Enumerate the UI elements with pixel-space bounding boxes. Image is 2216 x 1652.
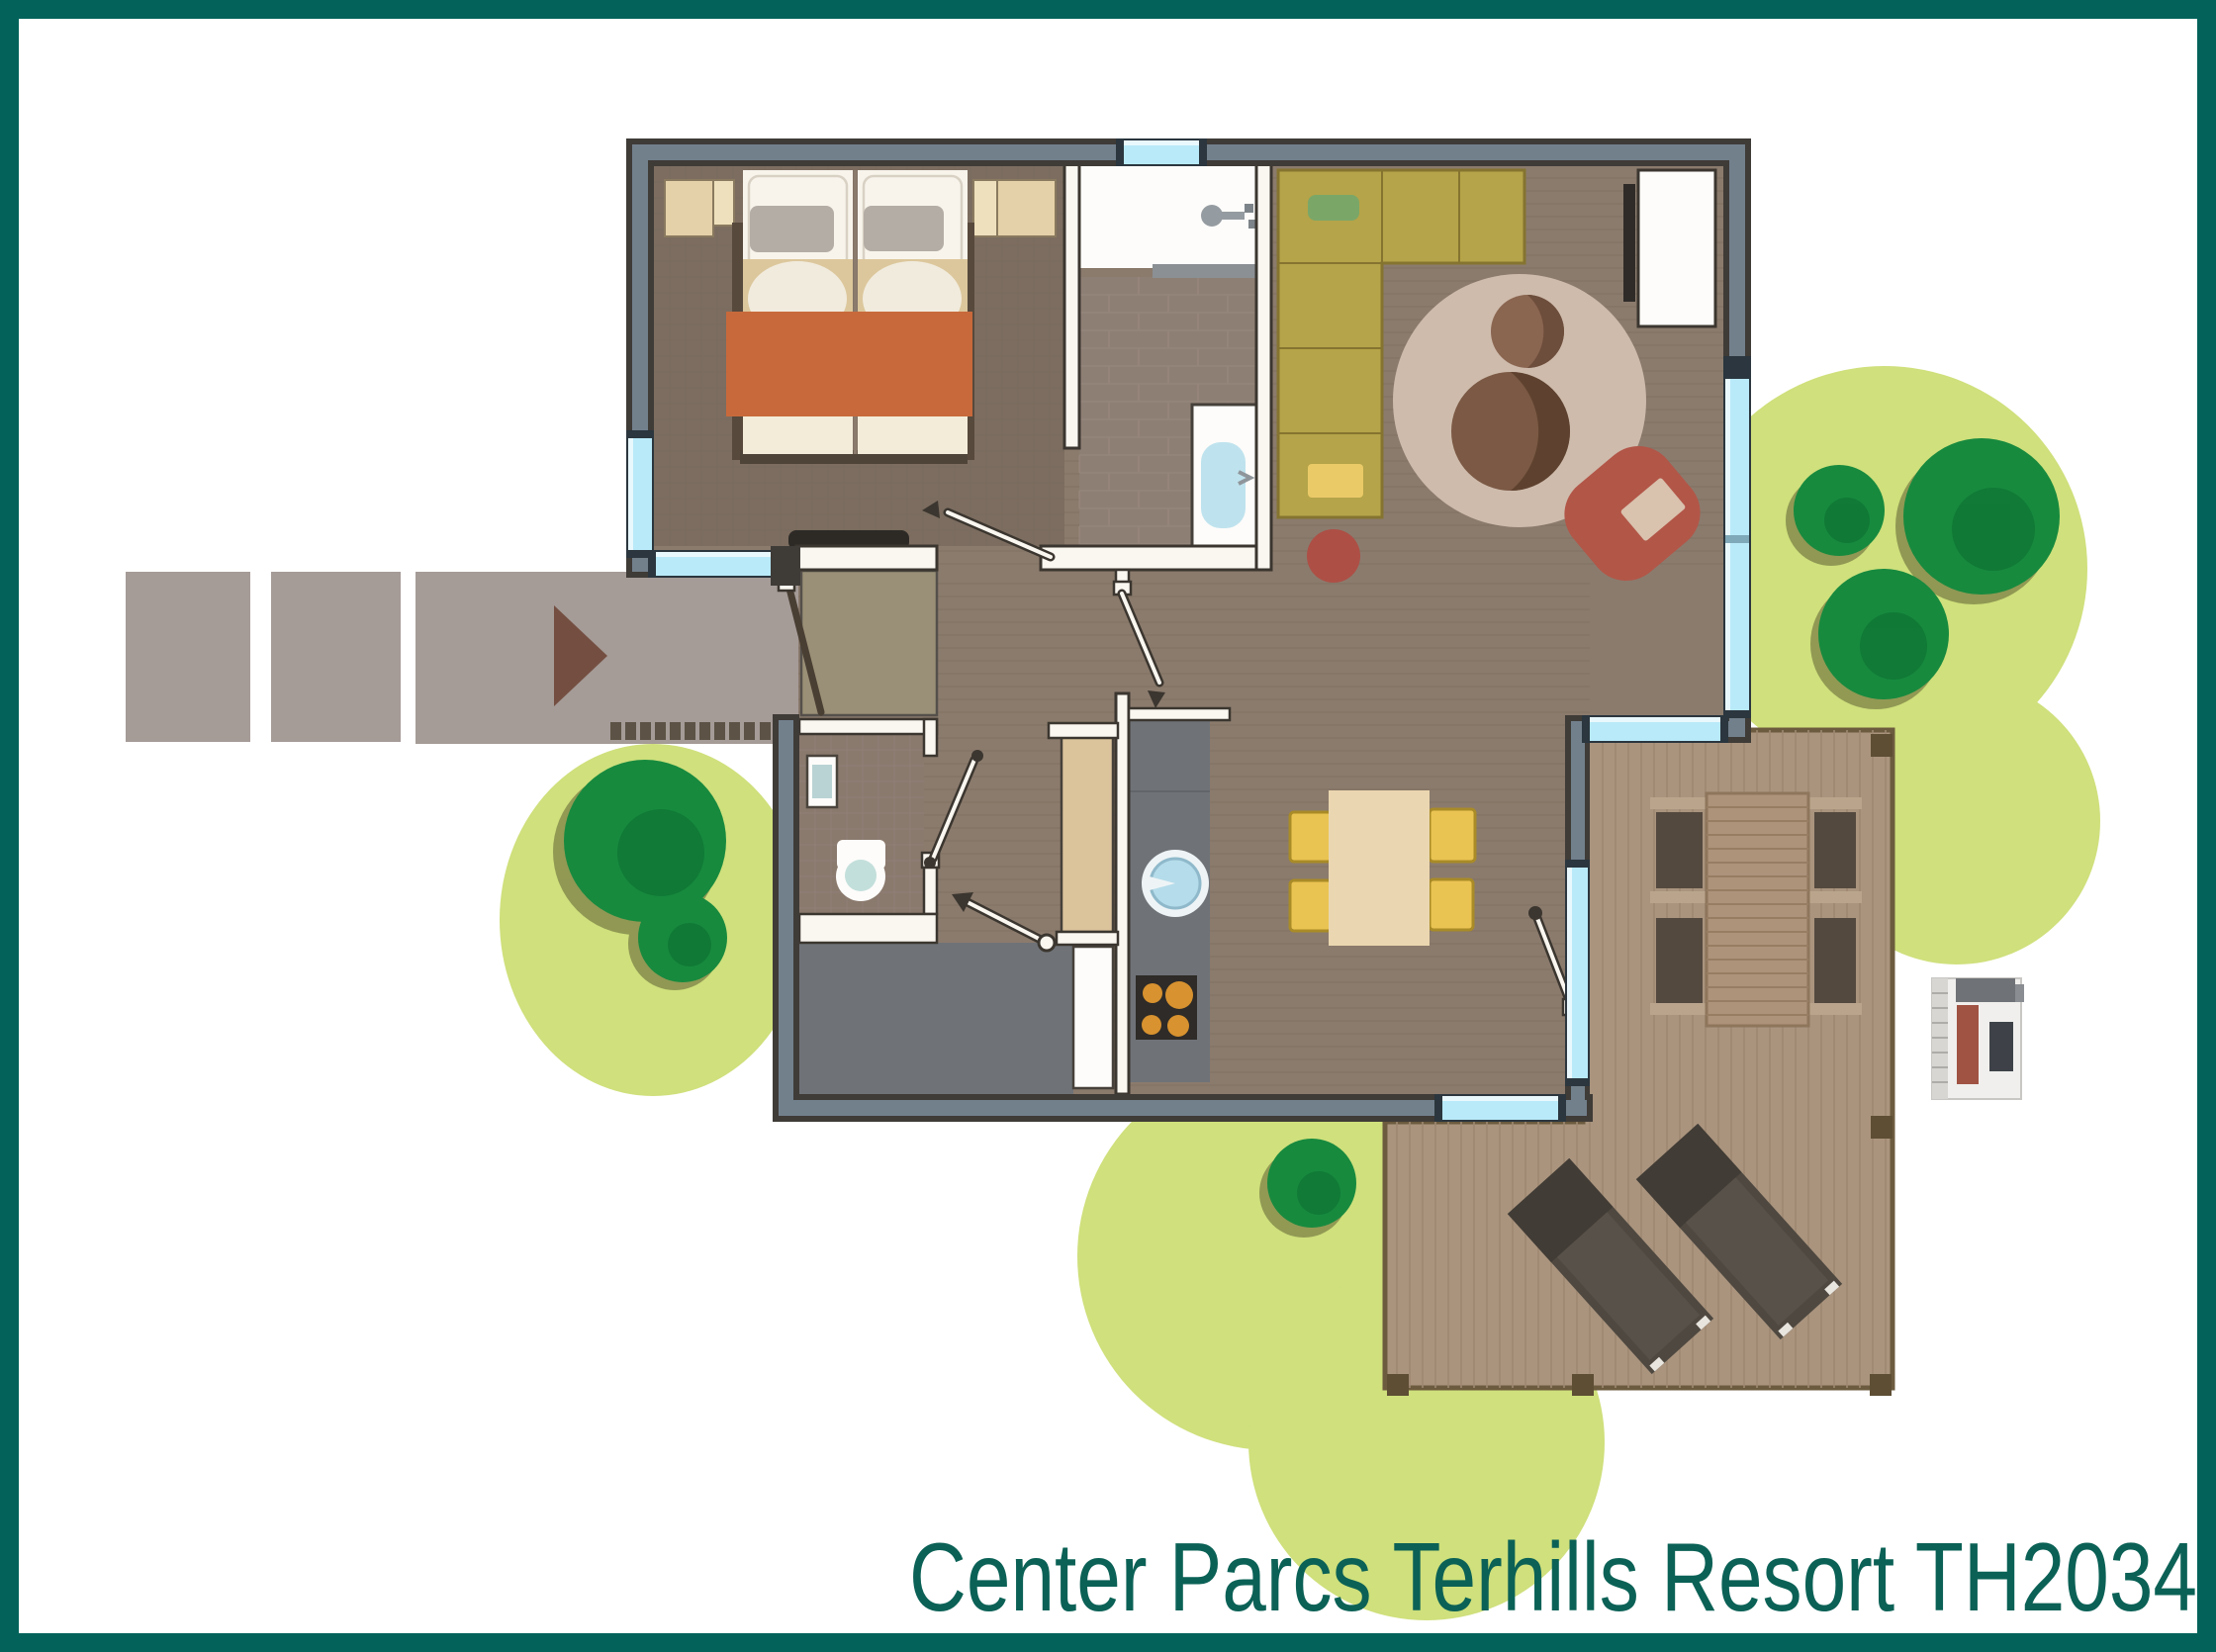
svg-text:Center Parcs Terhills Resort T: Center Parcs Terhills Resort TH2034 [909, 1522, 2197, 1631]
